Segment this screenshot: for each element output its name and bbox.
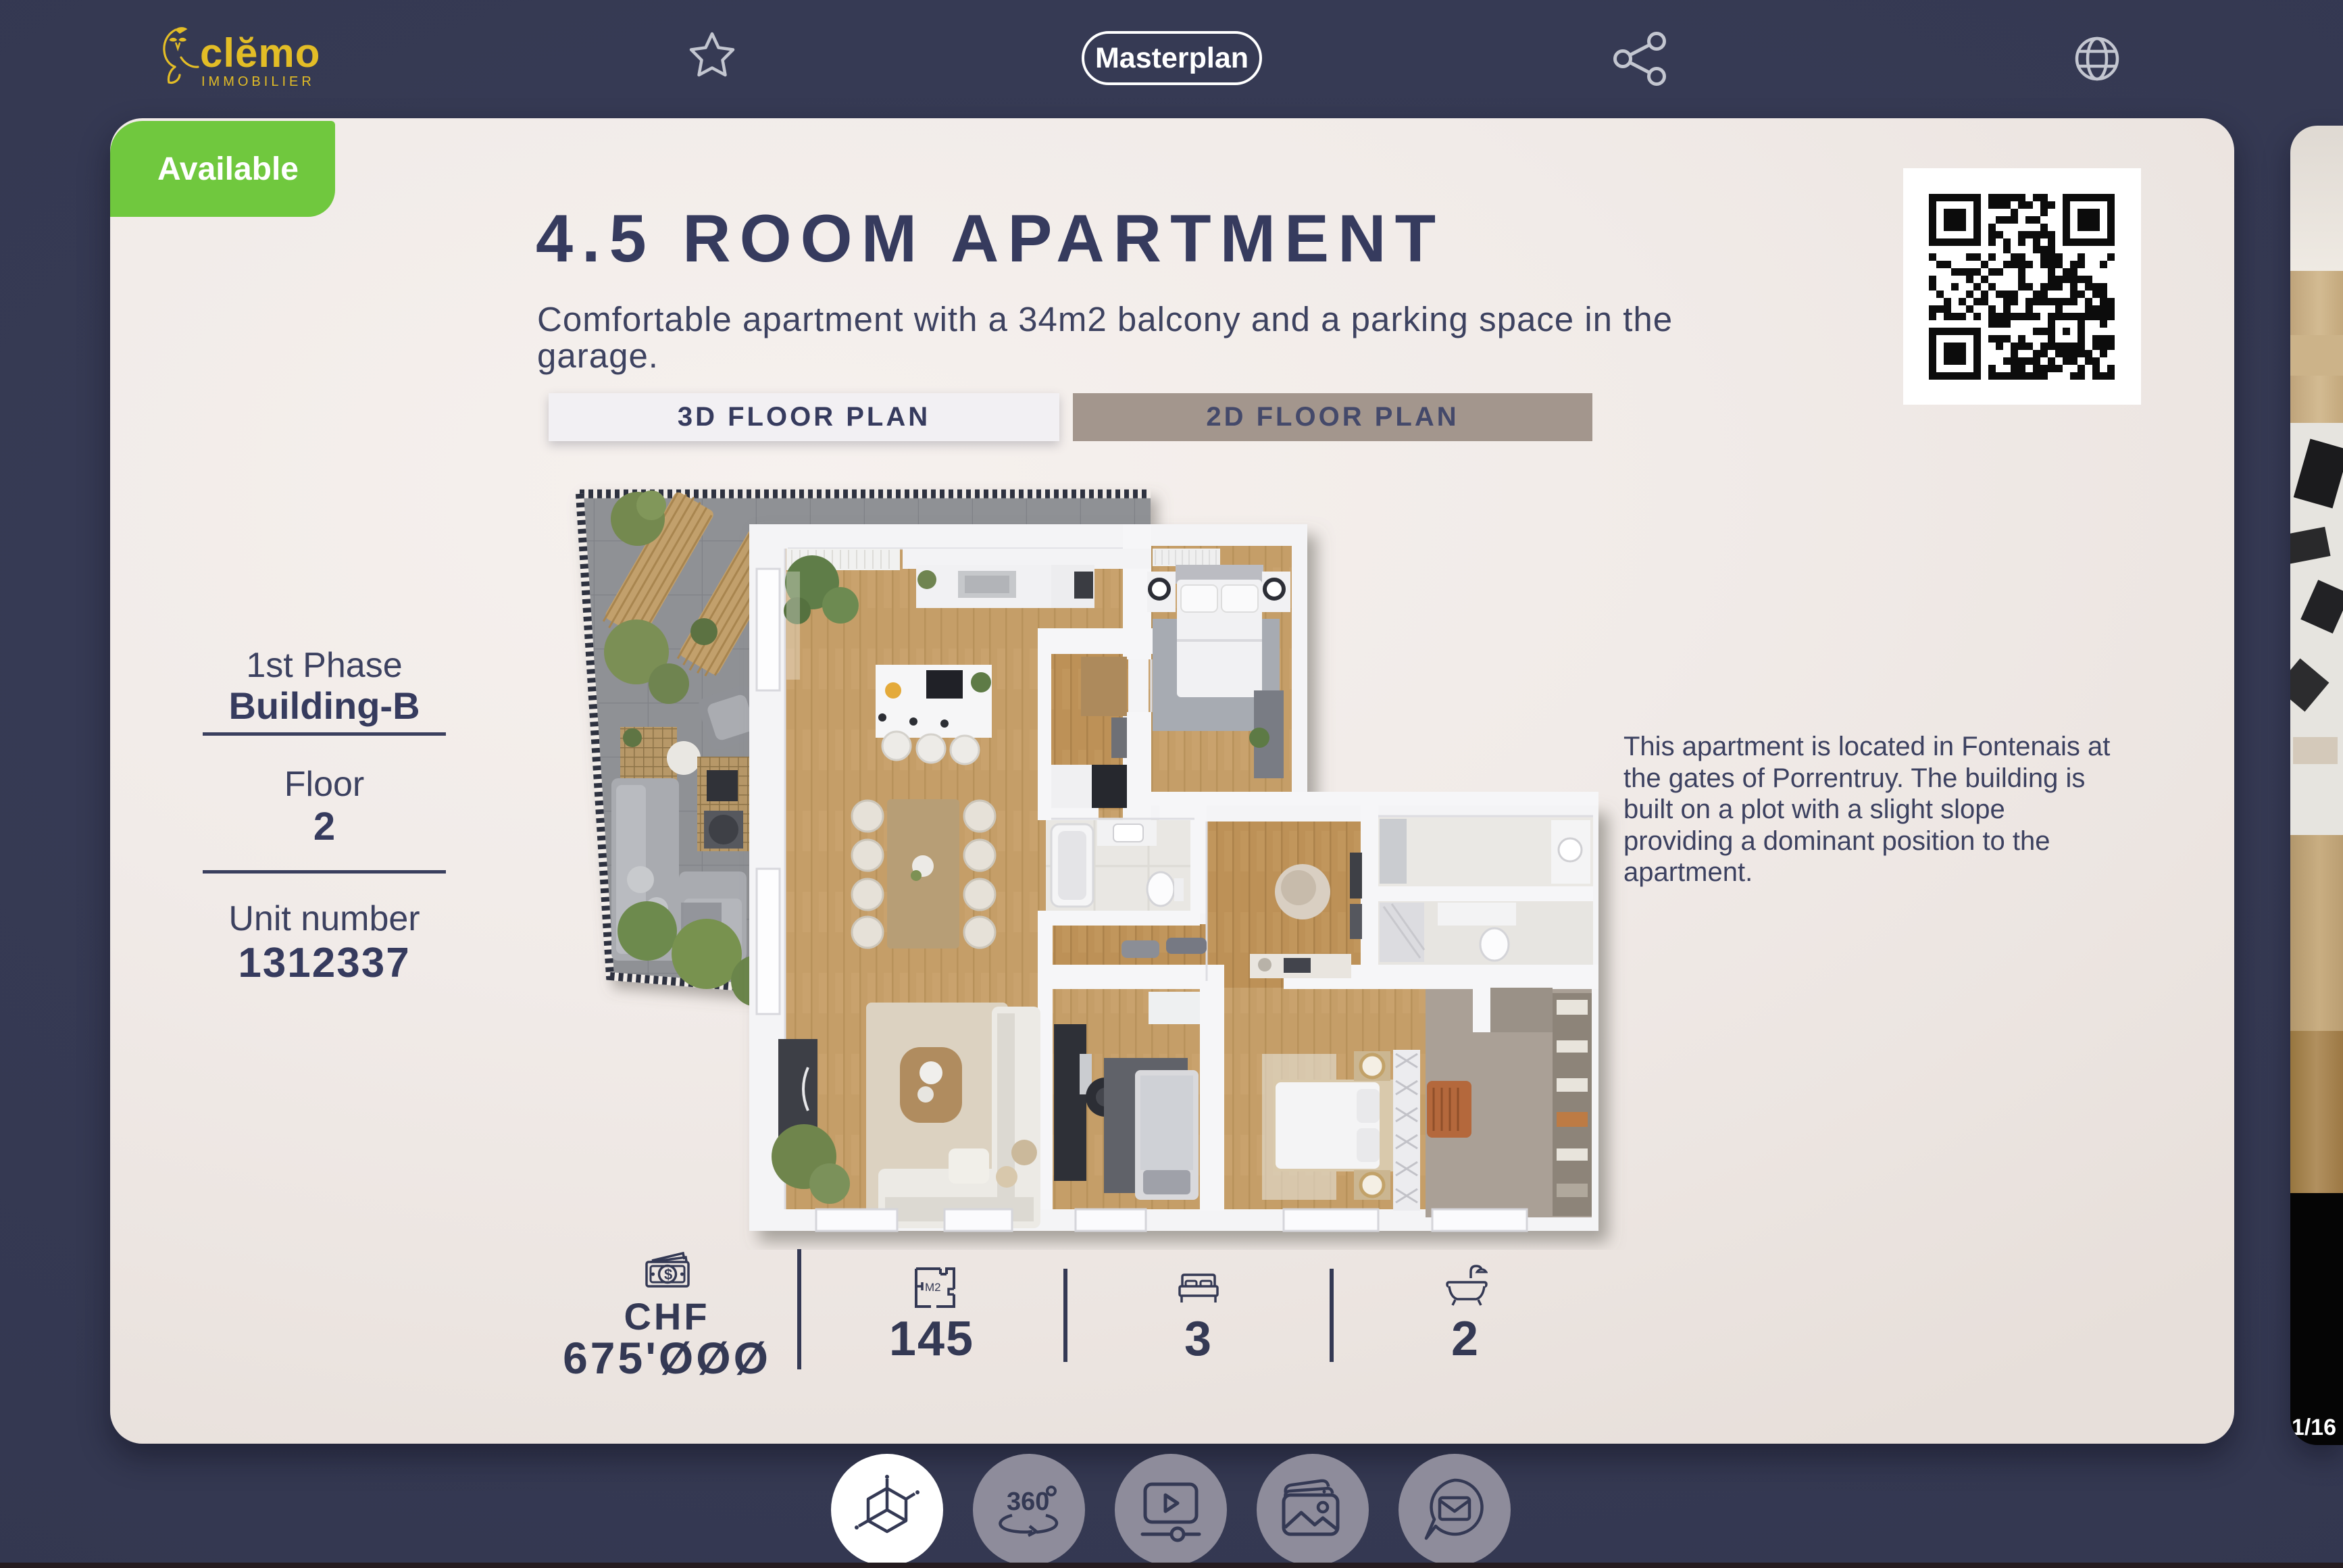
svg-text:360: 360 (1007, 1488, 1049, 1516)
svg-text:IMMOBILIER: IMMOBILIER (201, 74, 315, 89)
svg-text:clĕmo: clĕmo (200, 30, 320, 76)
svg-text:M2: M2 (925, 1281, 941, 1294)
svg-text:$: $ (664, 1266, 672, 1283)
